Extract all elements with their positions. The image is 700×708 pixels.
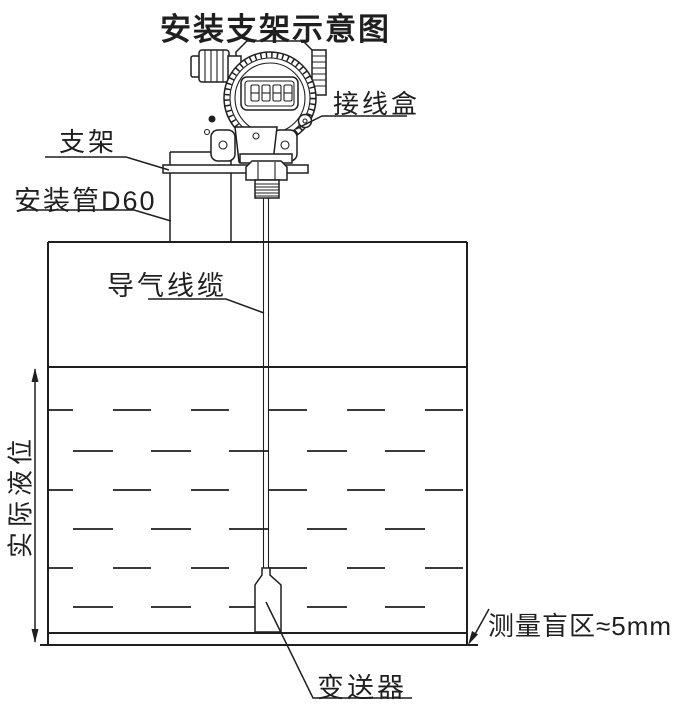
diagram-page: 安装支架示意图 接线盒 支架 安装管D60 导气线缆 实际液位 测量盲区≈5mm… [0,0,700,708]
transmitter-label: 变送器 [317,666,407,705]
bolt-ear [299,115,312,128]
actual-level-label: 实际液位 [1,434,38,558]
lcd-display [241,77,298,110]
leader-blind-zone [468,609,489,645]
hex-nut [246,161,287,180]
blind-zone-label: 测量盲区≈5mm [488,606,672,643]
liquid-dashes [48,410,464,607]
air-cable-line [264,198,269,571]
process-fitting [240,154,292,198]
junction-box-label: 接线盒 [333,84,420,121]
air-cable-label: 导气线缆 [107,264,227,303]
diagram-title: 安装支架示意图 [160,4,391,49]
threaded-stub [255,180,279,198]
screw-dot [209,116,216,123]
mounting-pipe-label: 安装管D60 [14,179,157,218]
sensor-head [191,41,326,162]
bracket-label: 支架 [59,122,117,159]
probe-body [255,568,281,632]
